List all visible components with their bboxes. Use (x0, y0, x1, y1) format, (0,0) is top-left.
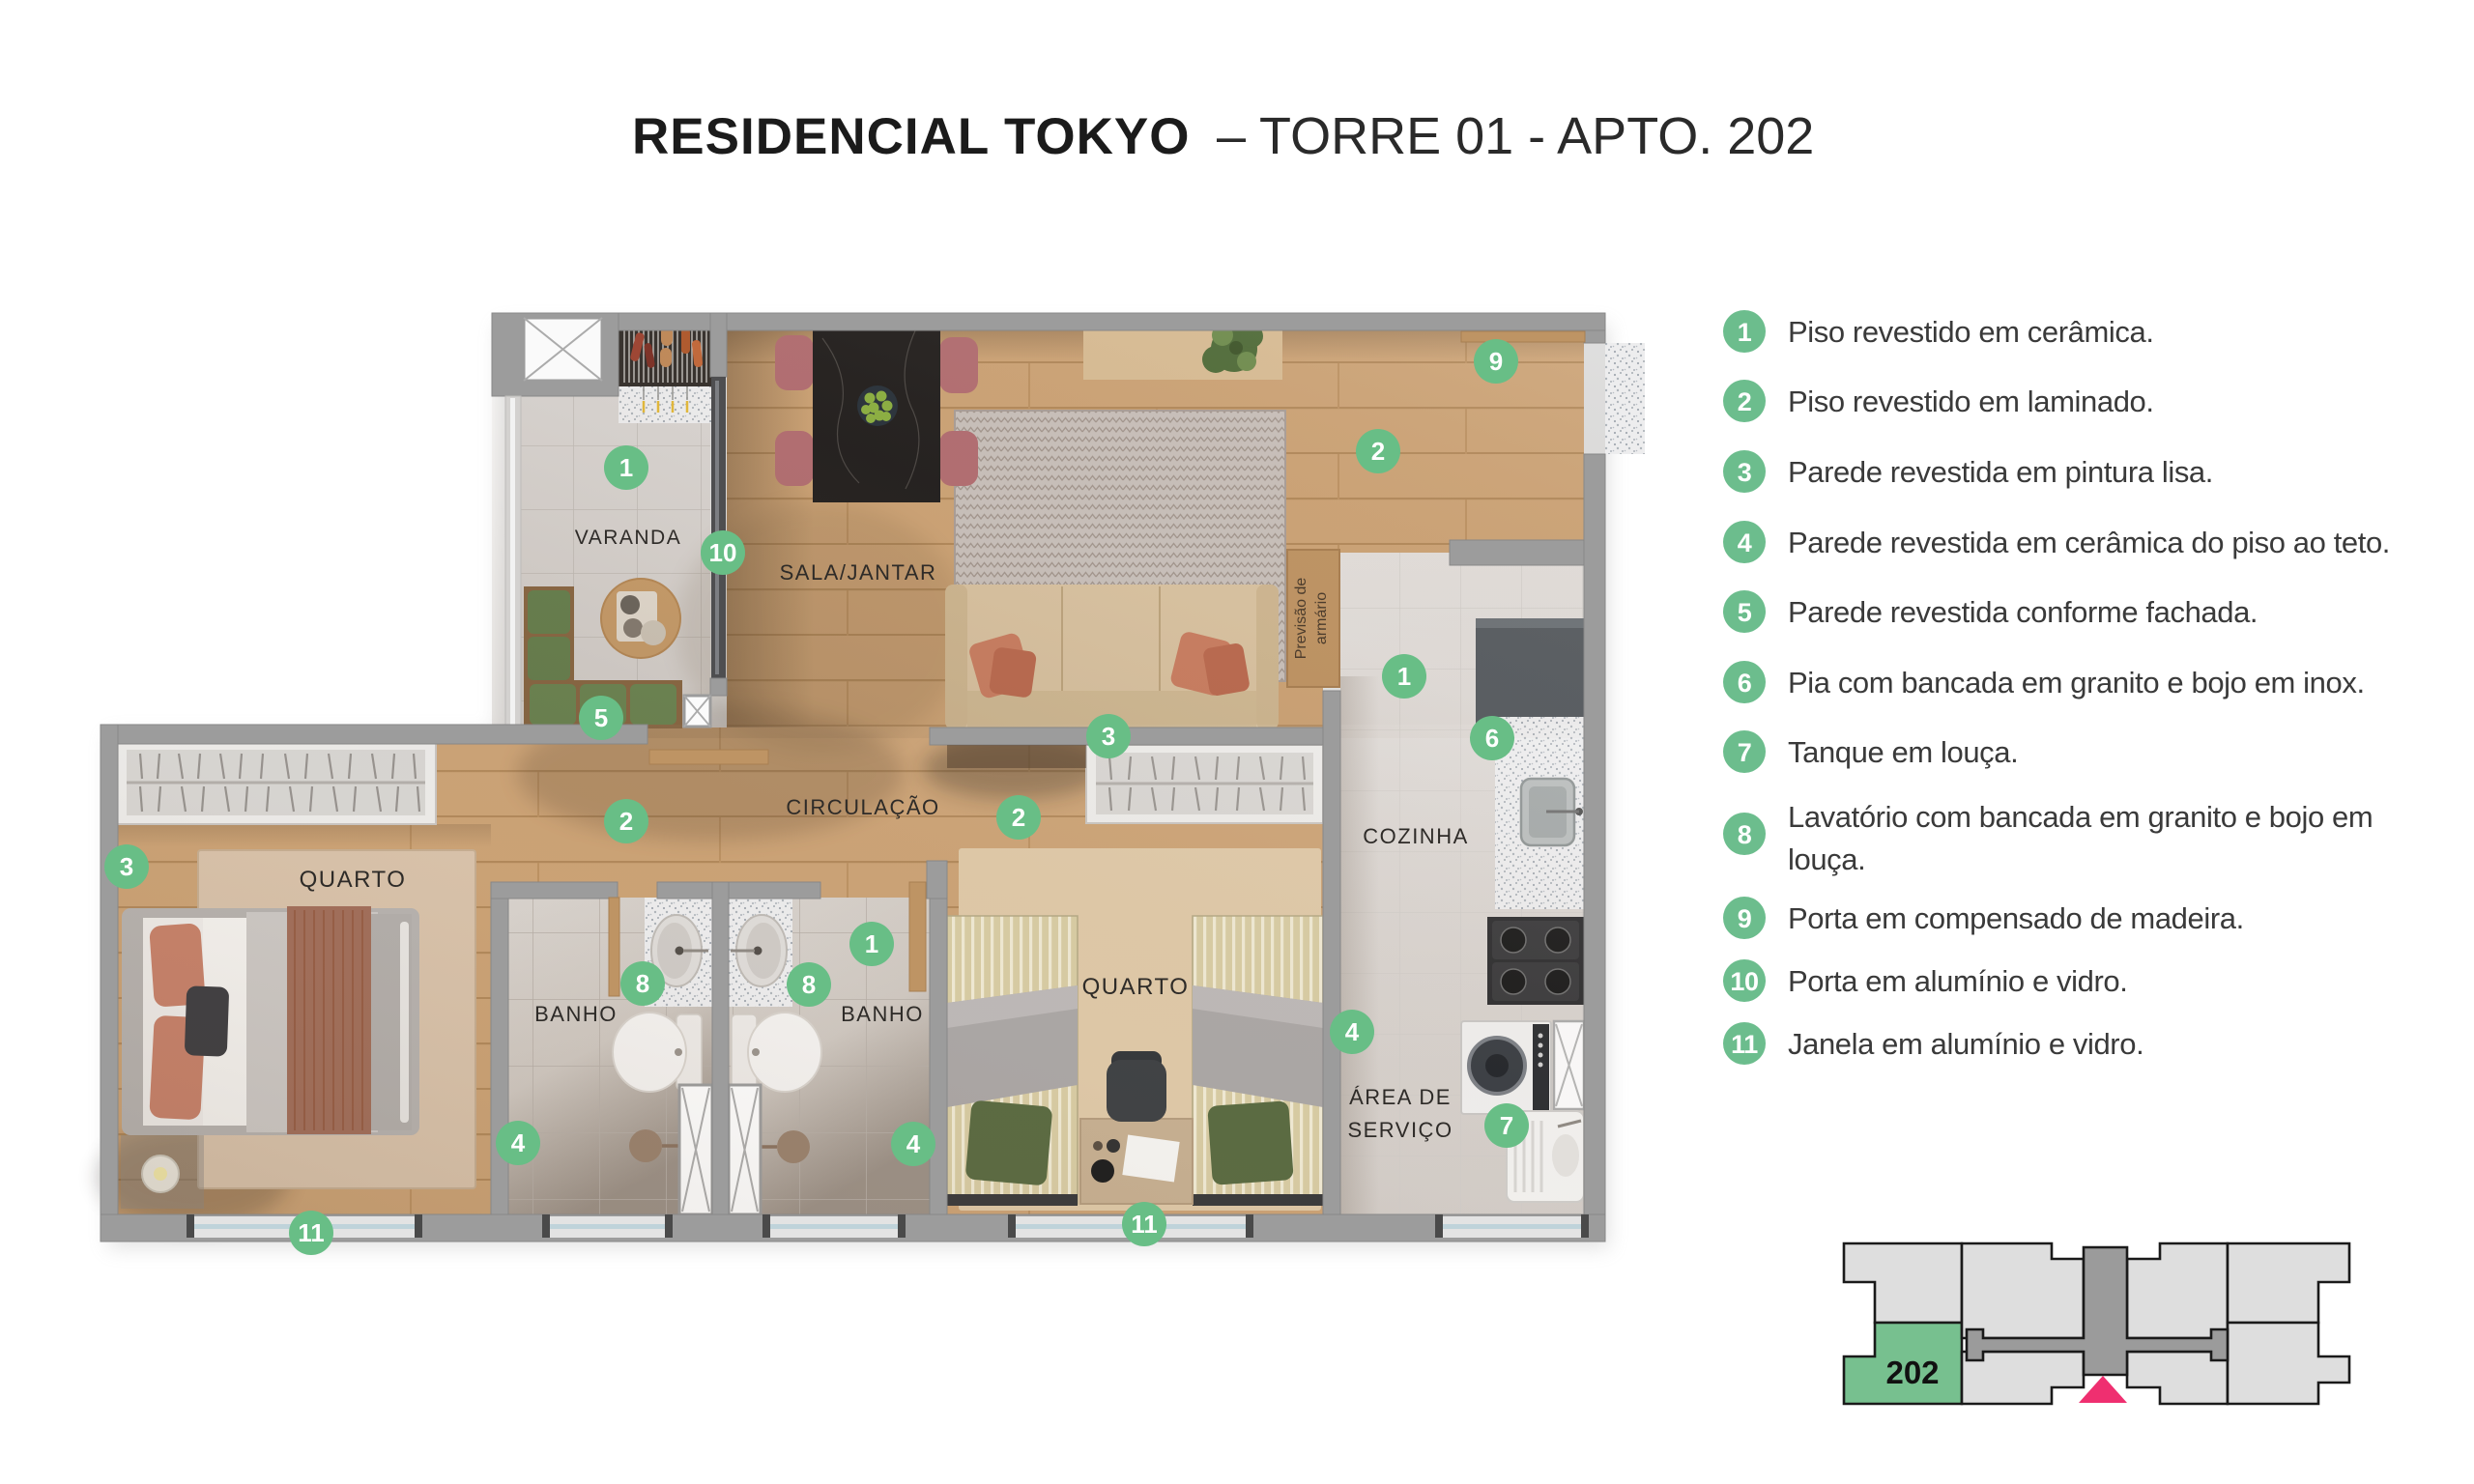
svg-text:VARANDA: VARANDA (575, 527, 681, 549)
svg-text:1: 1 (865, 929, 878, 958)
svg-text:QUARTO: QUARTO (1082, 974, 1190, 1000)
svg-text:11: 11 (1731, 1030, 1758, 1059)
svg-text:2: 2 (1738, 387, 1752, 416)
svg-text:1: 1 (1397, 662, 1411, 691)
svg-text:6: 6 (1485, 724, 1499, 753)
svg-text:QUARTO: QUARTO (300, 867, 407, 893)
svg-text:9: 9 (1489, 347, 1503, 376)
svg-text:BANHO: BANHO (534, 1002, 618, 1026)
svg-text:7: 7 (1738, 738, 1752, 767)
svg-text:11: 11 (1131, 1210, 1158, 1239)
svg-text:COZINHA: COZINHA (1363, 824, 1469, 848)
svg-text:3: 3 (120, 852, 133, 881)
svg-text:Porta em alumínio e vidro.: Porta em alumínio e vidro. (1788, 964, 2127, 998)
svg-text:8: 8 (802, 970, 816, 999)
svg-text:5: 5 (594, 703, 608, 732)
svg-text:Parede revestida em pintura li: Parede revestida em pintura lisa. (1788, 455, 2213, 489)
svg-text:ÁREA DE: ÁREA DE (1349, 1085, 1452, 1109)
svg-text:8: 8 (636, 969, 649, 998)
svg-text:Pia com bancada em granito e b: Pia com bancada em granito e bojo em ino… (1788, 666, 2365, 699)
svg-text:4: 4 (1345, 1017, 1360, 1046)
svg-text:Parede revestida em cerâmica d: Parede revestida em cerâmica do piso ao … (1788, 526, 2390, 559)
svg-text:4: 4 (511, 1128, 526, 1157)
svg-text:SALA/JANTAR: SALA/JANTAR (780, 560, 937, 585)
svg-text:RESIDENCIAL TOKYO: RESIDENCIAL TOKYO (632, 108, 1191, 165)
svg-text:– TORRE 01 - APTO. 202: – TORRE 01 - APTO. 202 (1217, 107, 1814, 165)
svg-text:Porta em compensado de madeira: Porta em compensado de madeira. (1788, 901, 2244, 935)
svg-text:6: 6 (1738, 669, 1752, 698)
svg-text:4: 4 (906, 1129, 921, 1158)
svg-text:SERVIÇO: SERVIÇO (1347, 1118, 1453, 1142)
svg-text:7: 7 (1500, 1111, 1513, 1140)
svg-text:Lavatório com bancada em grani: Lavatório com bancada em granito e bojo … (1788, 800, 2373, 834)
svg-text:8: 8 (1738, 820, 1752, 849)
svg-text:9: 9 (1738, 904, 1752, 933)
svg-text:louça.: louça. (1788, 842, 1865, 876)
svg-text:10: 10 (1730, 967, 1758, 996)
svg-text:1: 1 (619, 453, 633, 482)
svg-text:Tanque em louça.: Tanque em louça. (1788, 735, 2018, 769)
svg-text:5: 5 (1738, 598, 1752, 627)
svg-text:BANHO: BANHO (841, 1002, 924, 1026)
svg-text:11: 11 (298, 1218, 325, 1247)
svg-text:2: 2 (1371, 437, 1385, 466)
svg-text:2: 2 (619, 807, 633, 836)
svg-text:3: 3 (1102, 722, 1115, 751)
svg-text:Piso revestido em laminado.: Piso revestido em laminado. (1788, 385, 2154, 418)
svg-text:CIRCULAÇÃO: CIRCULAÇÃO (786, 795, 939, 819)
svg-text:Piso revestido em cerâmica.: Piso revestido em cerâmica. (1788, 315, 2154, 349)
svg-text:Parede revestida conforme fach: Parede revestida conforme fachada. (1788, 595, 2258, 629)
svg-text:Janela em alumínio e vidro.: Janela em alumínio e vidro. (1788, 1027, 2143, 1061)
svg-text:4: 4 (1738, 528, 1752, 557)
svg-text:202: 202 (1885, 1355, 1939, 1390)
svg-text:3: 3 (1738, 458, 1752, 487)
svg-text:2: 2 (1012, 803, 1025, 832)
svg-text:1: 1 (1738, 318, 1752, 347)
svg-text:10: 10 (709, 538, 737, 567)
